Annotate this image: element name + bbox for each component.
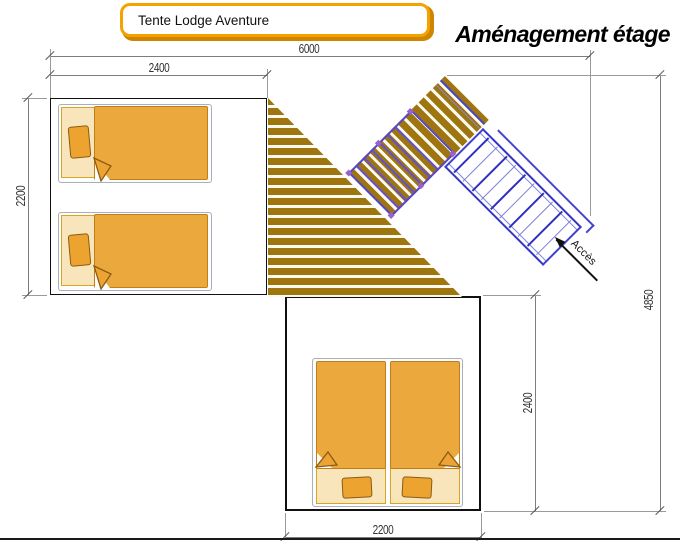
- ladder-rung: [508, 192, 544, 228]
- title-box-label: Tente Lodge Aventure: [123, 13, 269, 28]
- blanket-fold: [314, 450, 338, 472]
- ladder-outer-railing: [497, 129, 595, 227]
- gangway-end-rail: [440, 80, 485, 125]
- blanket-fold: [91, 153, 113, 182]
- title-box: Tente Lodge Aventure: [120, 3, 430, 37]
- ladder-outer-railing-cap: [586, 224, 595, 233]
- dim-text-left-room-depth: 2200: [14, 178, 28, 213]
- blanket-fold: [91, 261, 113, 290]
- ladder-rung: [481, 165, 516, 200]
- ladder-rung: [518, 202, 553, 237]
- dim-line-left-room-width: [50, 75, 267, 76]
- access-label: Accès: [568, 238, 598, 268]
- extension-line: [484, 511, 666, 512]
- double-bed-right-half: [390, 361, 460, 504]
- dim-line-left-room-depth: [28, 98, 29, 295]
- ladder-rung: [472, 156, 508, 192]
- double-bed-left-half: [316, 361, 386, 504]
- double-bed: [312, 358, 463, 507]
- bed-pillow: [401, 476, 432, 499]
- ladder-rung: [462, 146, 497, 181]
- drawing-frame-bottom-edge: [0, 538, 680, 540]
- dim-text-overall-width: 6000: [291, 42, 326, 56]
- dim-text-bottom-room-depth: 2400: [521, 385, 535, 420]
- bed-pillow: [68, 233, 92, 267]
- single-bed-1: [58, 104, 212, 183]
- dim-line-bottom-room-depth: [535, 295, 536, 511]
- blanket-fold: [438, 450, 462, 472]
- plan-heading: Aménagement étage: [455, 21, 670, 48]
- bed-pillow: [341, 476, 372, 499]
- ladder-rung: [499, 183, 534, 218]
- bed-pillow: [68, 125, 92, 159]
- access-leader: Accès: [557, 239, 598, 280]
- dim-text-overall-depth: 4850: [642, 282, 656, 317]
- gangway-end-rail: [436, 85, 481, 130]
- dim-text-bottom-room-width: 2200: [365, 523, 400, 537]
- single-bed-2: [58, 212, 212, 291]
- dim-line-overall-width: [50, 56, 590, 57]
- dim-text-left-room-width: 2400: [141, 61, 176, 75]
- dim-line-overall-depth: [660, 75, 661, 511]
- extension-line: [447, 75, 666, 76]
- floor-plan-canvas: Tente Lodge Aventure Aménagement étage 6…: [0, 0, 680, 541]
- ladder-rung: [490, 174, 526, 210]
